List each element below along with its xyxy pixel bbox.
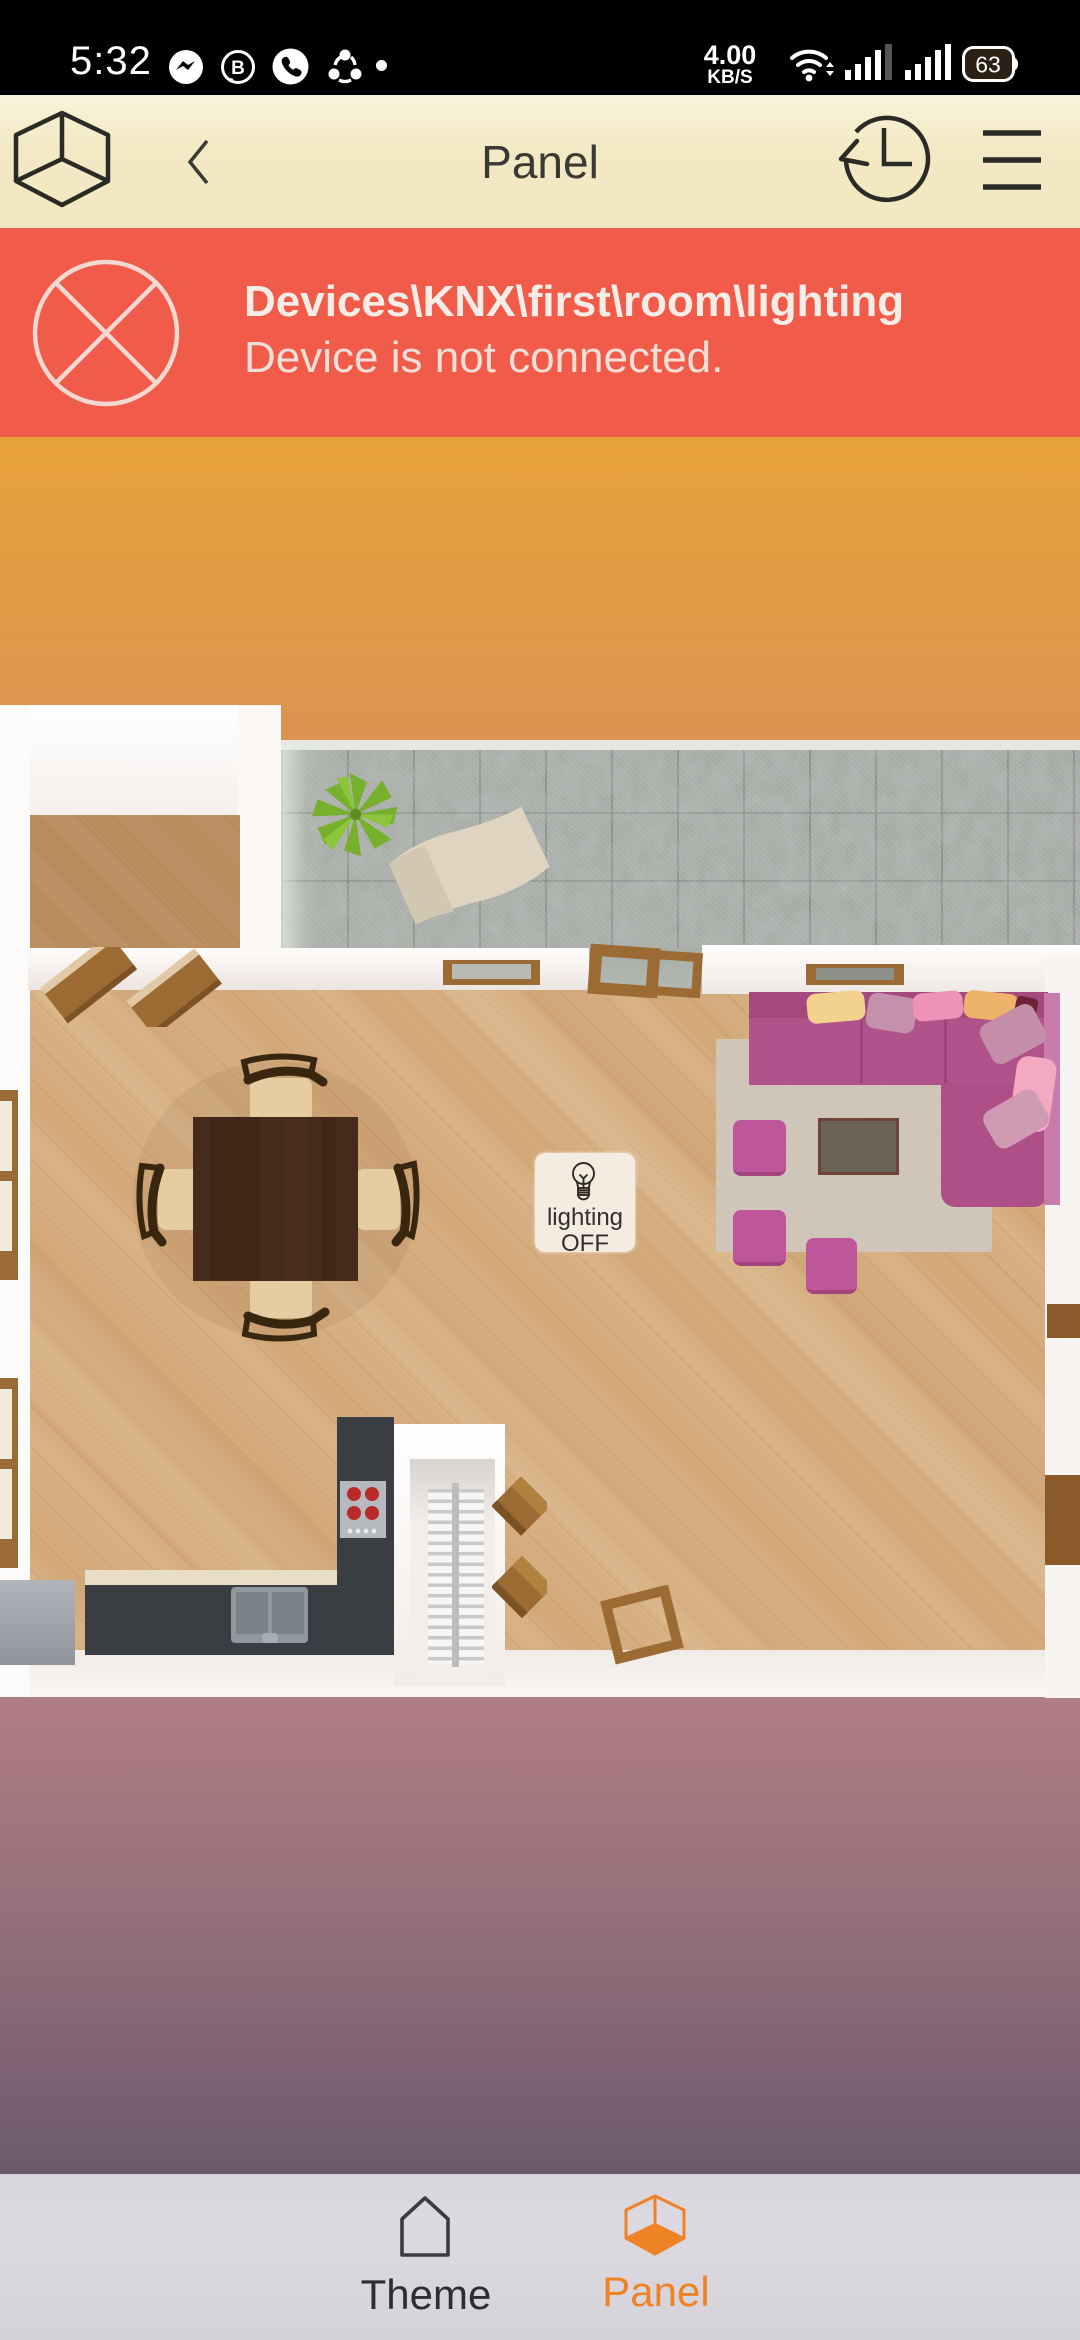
svg-text:B: B bbox=[231, 58, 245, 79]
svg-text:63: 63 bbox=[975, 52, 1001, 78]
